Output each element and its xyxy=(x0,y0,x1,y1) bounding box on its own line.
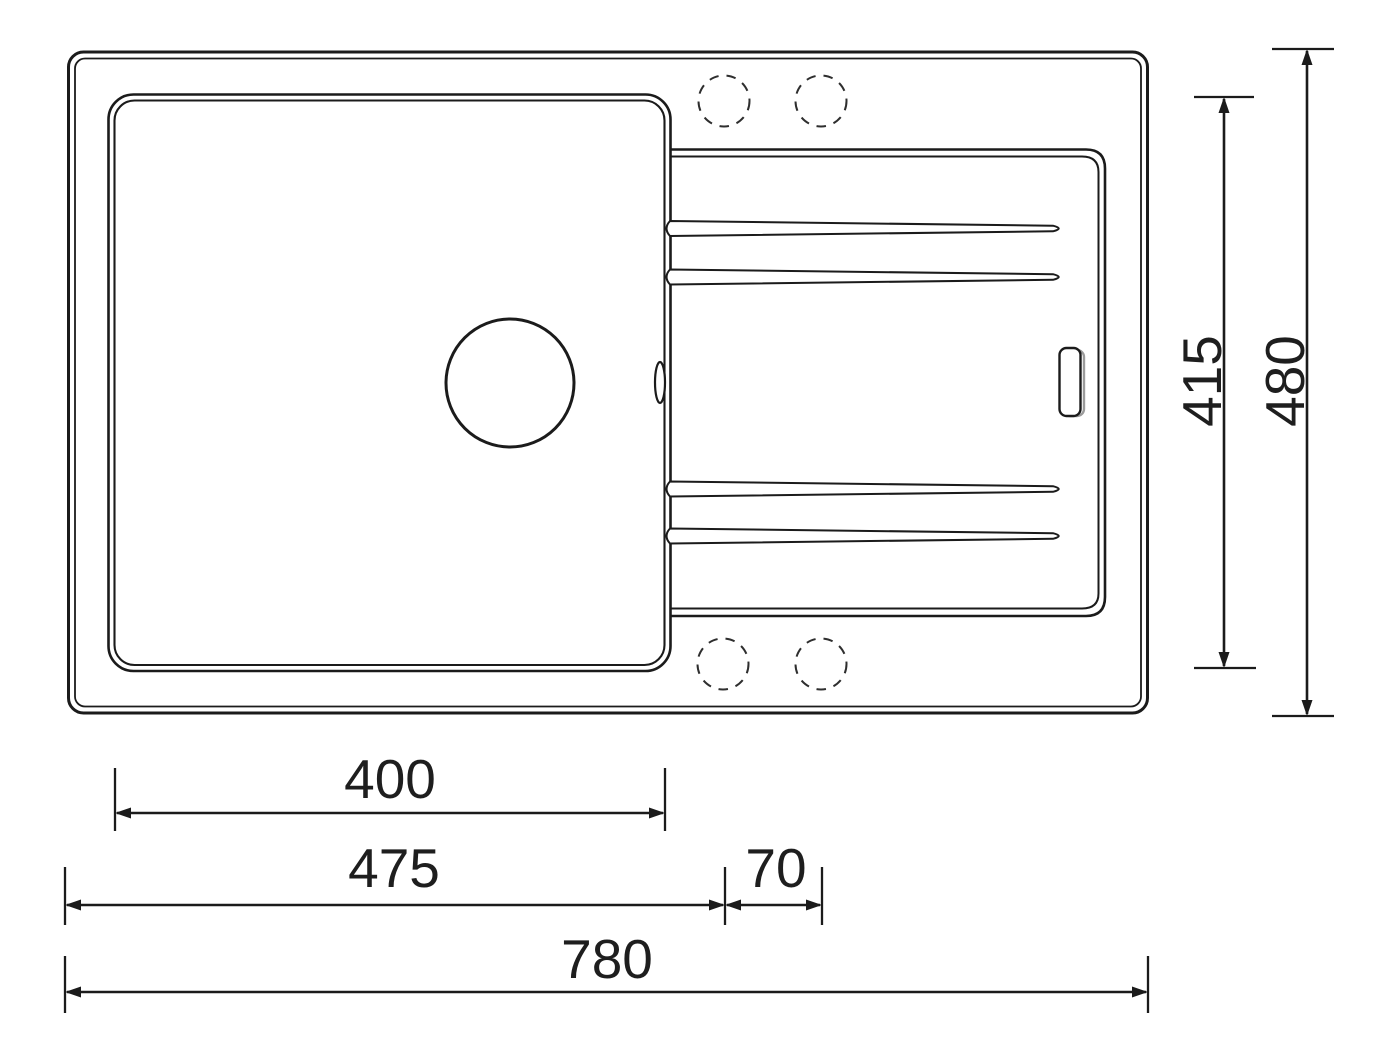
overflow-notch xyxy=(655,362,665,403)
drainer-outer-edge xyxy=(656,150,1105,617)
dimension-edge-strip: 70 xyxy=(725,837,822,925)
overflow-slot xyxy=(1060,348,1085,416)
dimension-bowl-width: 400 xyxy=(115,748,665,831)
dim-label-edge-strip: 70 xyxy=(745,837,806,899)
sink-technical-drawing: 400 475 70 780 415 xyxy=(0,0,1400,1058)
dimension-left-section-width: 475 xyxy=(65,837,725,925)
dim-label-left-section-width: 475 xyxy=(348,837,440,899)
arrowhead-left xyxy=(65,987,81,998)
dimension-overall-width: 780 xyxy=(65,928,1148,1013)
dimension-inner-depth: 415 xyxy=(1171,97,1256,668)
arrowhead-left xyxy=(65,900,81,911)
arrowhead-right xyxy=(709,900,725,911)
dim-label-inner-depth: 415 xyxy=(1171,335,1233,427)
dimension-overall-depth: 480 xyxy=(1254,49,1334,716)
bowl-outer-edge xyxy=(109,95,671,672)
arrowhead-down xyxy=(1302,700,1313,716)
arrowhead-left xyxy=(115,808,131,819)
arrowhead-down xyxy=(1219,652,1230,668)
bowl xyxy=(109,95,671,672)
arrowhead-right xyxy=(649,808,665,819)
dim-label-overall-width: 780 xyxy=(561,928,653,990)
arrowhead-right xyxy=(1132,987,1148,998)
arrowhead-up xyxy=(1219,97,1230,113)
arrowhead-up xyxy=(1302,49,1313,65)
overflow-slot-outline xyxy=(1060,348,1081,416)
drain-hole xyxy=(446,319,574,447)
arrowhead-left xyxy=(725,900,741,911)
drainer xyxy=(656,150,1105,617)
dim-label-overall-depth: 480 xyxy=(1254,335,1316,427)
drawing-canvas: 400 475 70 780 415 xyxy=(0,0,1400,1058)
arrowhead-right xyxy=(806,900,822,911)
dim-label-bowl-width: 400 xyxy=(344,748,436,810)
drain-circle xyxy=(446,319,574,447)
